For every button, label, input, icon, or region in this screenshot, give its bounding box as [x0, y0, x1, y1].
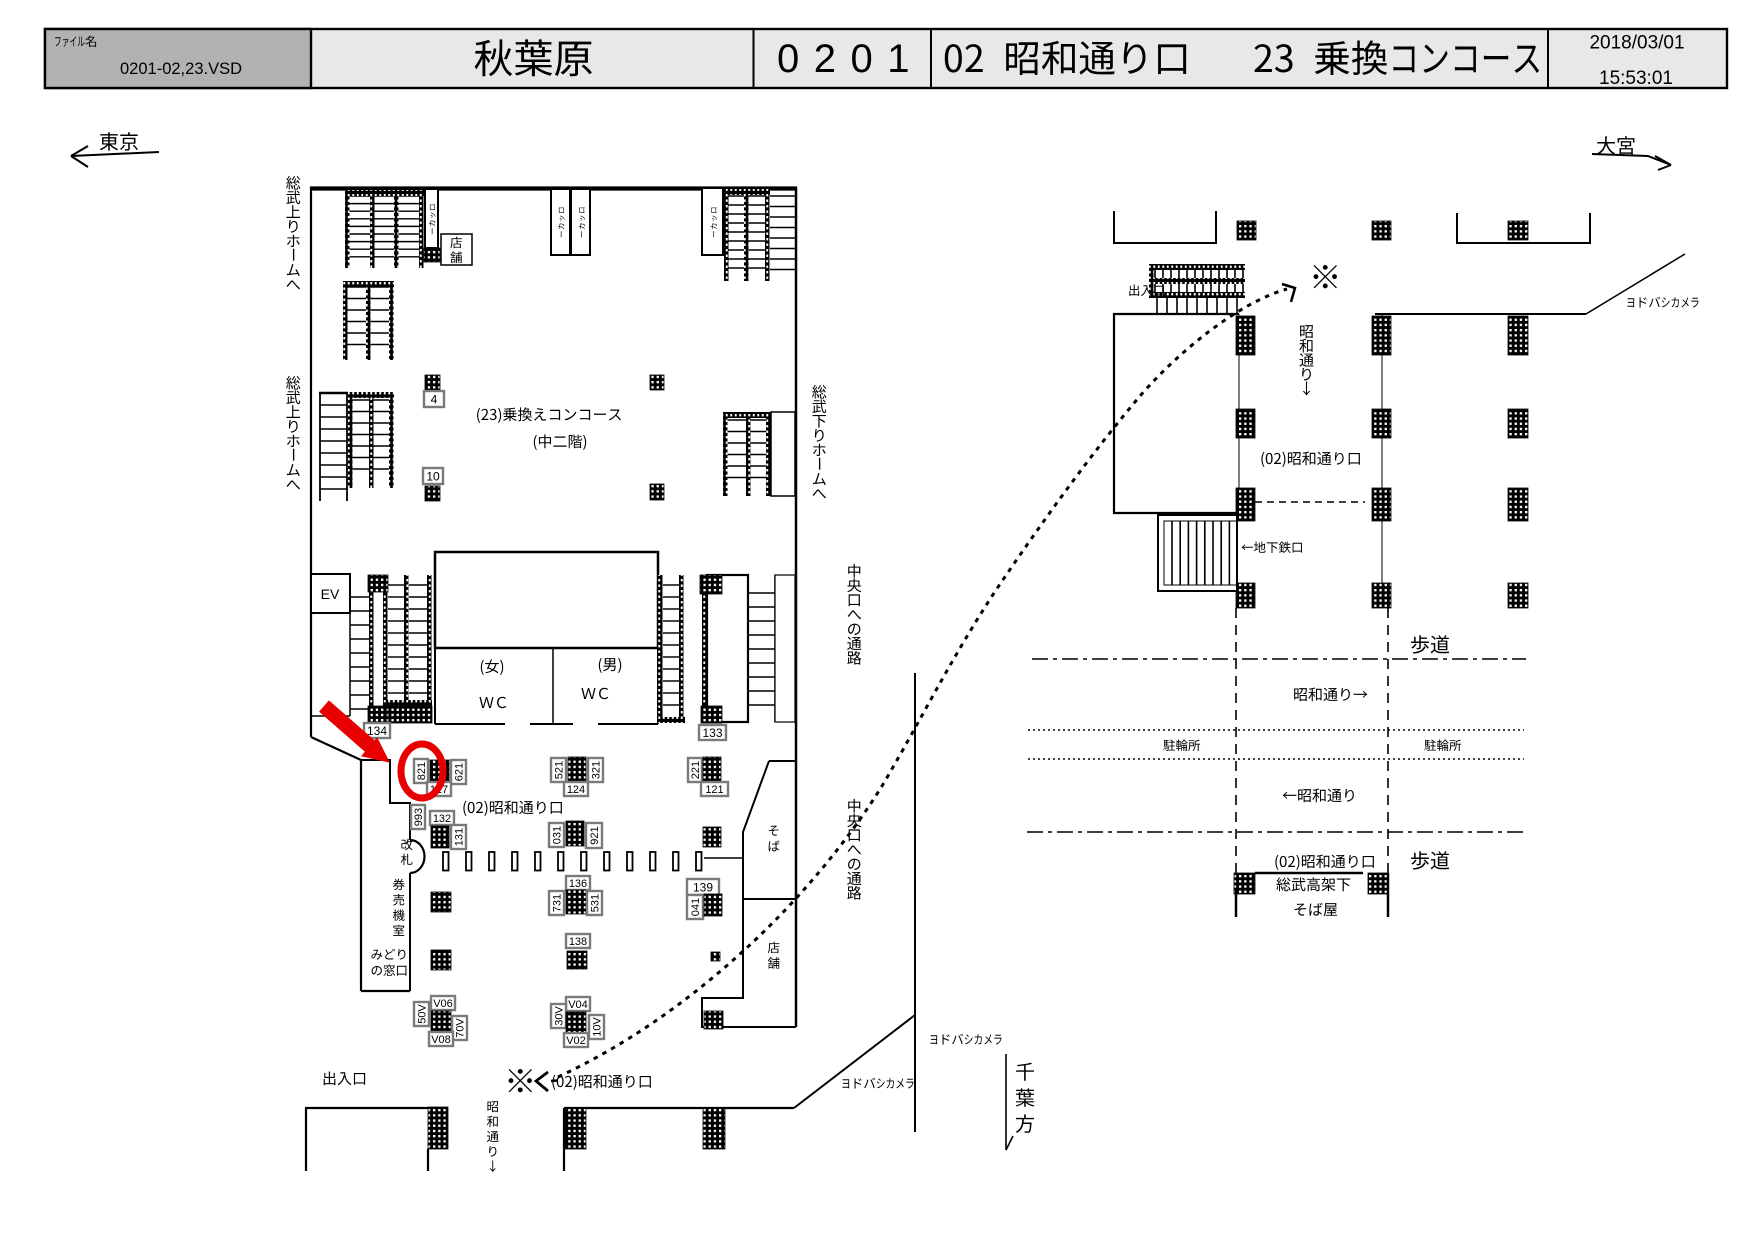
- svg-text:133: 133: [702, 726, 722, 740]
- svg-text:0201: 0201: [777, 37, 924, 81]
- svg-text:10V: 10V: [591, 1017, 603, 1037]
- svg-text:132: 132: [433, 813, 451, 825]
- svg-text:821: 821: [416, 762, 428, 780]
- svg-text:V02: V02: [566, 1035, 586, 1047]
- svg-text:50V: 50V: [416, 1004, 428, 1024]
- svg-text:121: 121: [705, 784, 723, 796]
- svg-text:138: 138: [569, 936, 587, 948]
- svg-text:124: 124: [567, 784, 585, 796]
- svg-text:10: 10: [426, 469, 440, 483]
- svg-text:031: 031: [551, 826, 563, 844]
- svg-text:621: 621: [453, 763, 465, 781]
- svg-text:V08: V08: [431, 1034, 451, 1046]
- svg-text:15:53:01: 15:53:01: [1599, 68, 1673, 89]
- svg-text:136: 136: [569, 878, 587, 890]
- svg-text:V04: V04: [568, 999, 588, 1011]
- svg-text:2018/03/01: 2018/03/01: [1589, 33, 1684, 54]
- svg-text:70V: 70V: [454, 1018, 466, 1038]
- svg-text:993: 993: [413, 808, 425, 826]
- svg-text:041: 041: [690, 898, 702, 916]
- svg-text:521: 521: [553, 761, 565, 779]
- svg-text:134: 134: [367, 724, 387, 738]
- svg-text:30V: 30V: [553, 1006, 565, 1026]
- svg-text:139: 139: [693, 880, 713, 894]
- svg-text:531: 531: [589, 894, 601, 912]
- svg-text:731: 731: [551, 894, 563, 912]
- svg-text:321: 321: [590, 761, 602, 779]
- svg-text:4: 4: [431, 392, 438, 406]
- svg-text:221: 221: [690, 761, 702, 779]
- svg-text:0201-02,23.VSD: 0201-02,23.VSD: [120, 60, 242, 78]
- svg-text:921: 921: [589, 826, 601, 844]
- svg-text:131: 131: [453, 828, 465, 846]
- svg-text:V06: V06: [433, 998, 453, 1010]
- svg-text:EV: EV: [321, 586, 340, 602]
